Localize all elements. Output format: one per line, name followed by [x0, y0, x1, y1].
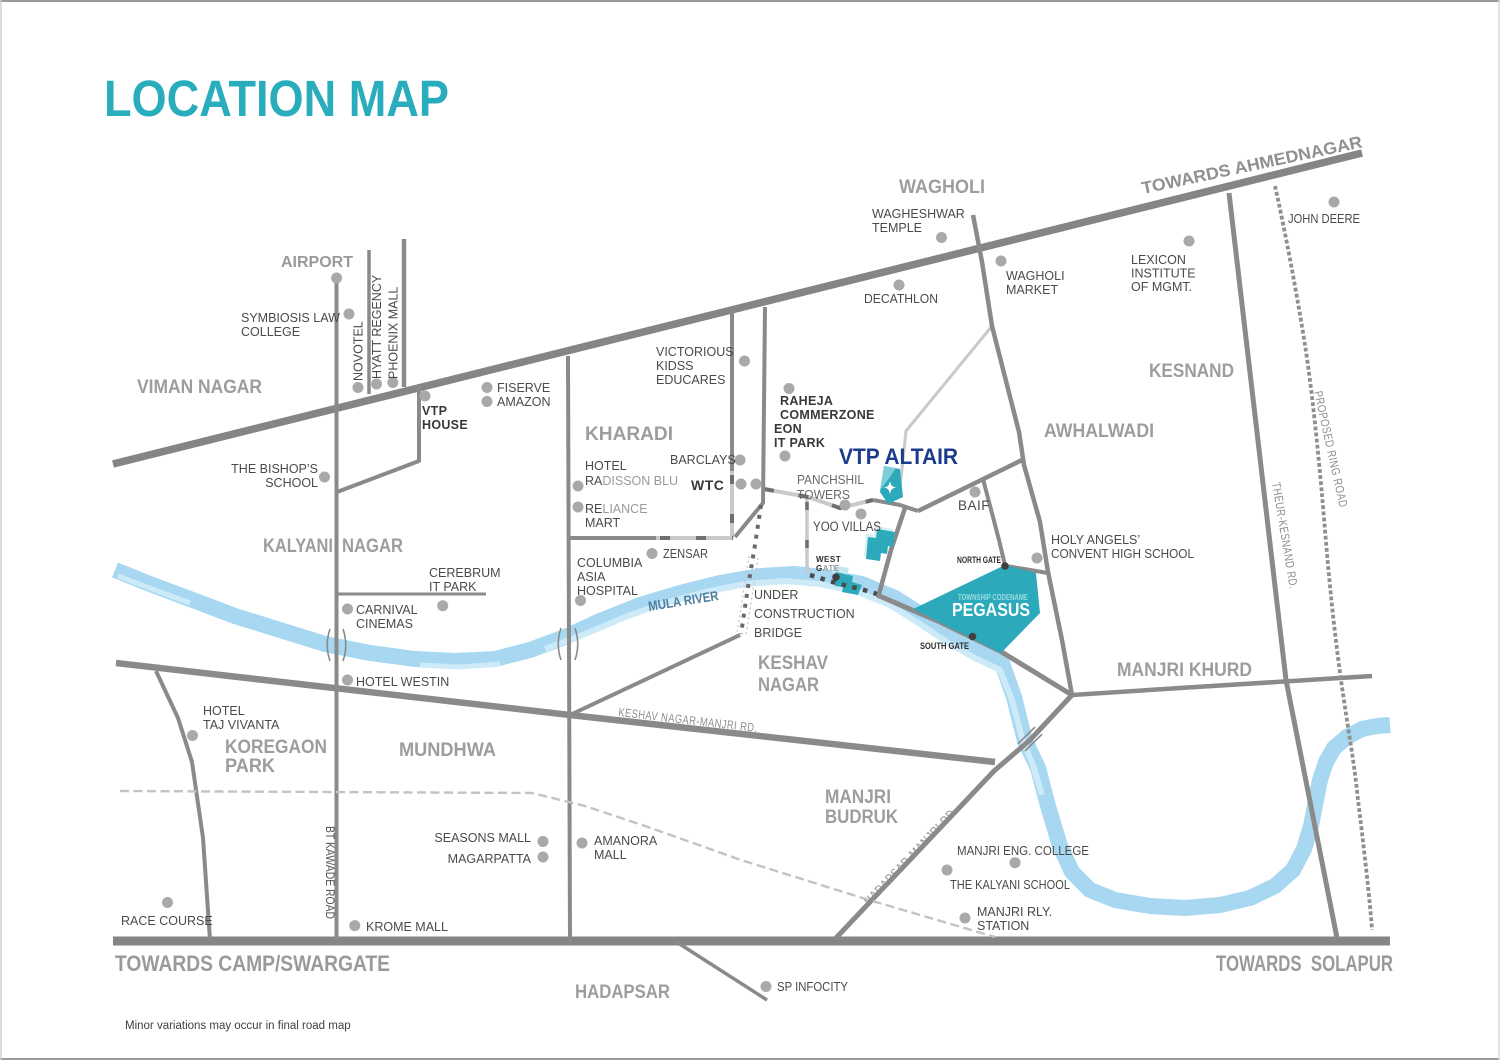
svg-text:HOSPITAL: HOSPITAL: [577, 584, 638, 598]
svg-text:LOCATION MAP: LOCATION MAP: [104, 70, 449, 127]
svg-text:RADISSON BLU: RADISSON BLU: [585, 474, 678, 488]
svg-text:VTP ALTAIR: VTP ALTAIR: [839, 444, 958, 469]
svg-text:CINEMAS: CINEMAS: [356, 617, 413, 631]
svg-text:KESHAV: KESHAV: [758, 653, 828, 674]
svg-text:THE KALYANI SCHOOL: THE KALYANI SCHOOL: [950, 878, 1070, 892]
svg-text:MART: MART: [585, 516, 621, 530]
svg-text:TEMPLE: TEMPLE: [872, 221, 922, 235]
svg-text:TAJ VIVANTA: TAJ VIVANTA: [203, 718, 280, 732]
svg-text:NOVOTEL: NOVOTEL: [352, 321, 366, 381]
svg-text:BRIDGE: BRIDGE: [754, 626, 802, 640]
svg-text:EDUCARES: EDUCARES: [656, 373, 725, 387]
svg-text:UNDER: UNDER: [754, 588, 798, 602]
svg-text:ASIA: ASIA: [577, 570, 606, 584]
svg-text:COMMERZONE: COMMERZONE: [780, 408, 875, 422]
svg-text:BAIF: BAIF: [958, 498, 990, 513]
svg-text:RELIANCE: RELIANCE: [585, 502, 648, 516]
svg-text:CARNIVAL: CARNIVAL: [356, 603, 418, 617]
svg-text:OF MGMT.: OF MGMT.: [1131, 280, 1192, 294]
svg-text:MALL: MALL: [594, 848, 627, 862]
svg-text:INSTITUTE: INSTITUTE: [1131, 267, 1196, 281]
svg-text:PARK: PARK: [225, 756, 275, 777]
svg-text:KESNAND: KESNAND: [1149, 361, 1234, 382]
svg-text:EON: EON: [774, 422, 802, 436]
svg-text:AMANORA: AMANORA: [594, 834, 658, 848]
svg-text:HOUSE: HOUSE: [422, 418, 468, 432]
svg-text:HOLY ANGELS’: HOLY ANGELS’: [1051, 533, 1140, 547]
svg-text:SEASONS MALL: SEASONS MALL: [434, 831, 531, 845]
svg-text:HOTEL WESTIN: HOTEL WESTIN: [356, 675, 449, 689]
svg-text:HOTEL: HOTEL: [203, 704, 245, 718]
svg-text:PHOENIX MALL: PHOENIX MALL: [387, 287, 401, 379]
svg-text:KIDSS: KIDSS: [656, 359, 694, 373]
svg-text:JOHN DEERE: JOHN DEERE: [1288, 212, 1360, 226]
svg-text:AWHALWADI: AWHALWADI: [1044, 421, 1154, 442]
svg-text:RAHEJA: RAHEJA: [780, 394, 833, 408]
svg-text:MANJRI: MANJRI: [825, 787, 891, 808]
svg-text:HYATT REGENCY: HYATT REGENCY: [370, 274, 384, 379]
svg-text:GATE: GATE: [816, 564, 840, 573]
svg-text:BT KAWADE ROAD: BT KAWADE ROAD: [323, 826, 335, 919]
svg-text:NORTH GATE: NORTH GATE: [957, 555, 1001, 565]
svg-text:DECATHLON: DECATHLON: [864, 292, 938, 306]
svg-text:TOWERS: TOWERS: [797, 487, 850, 502]
svg-text:WTC: WTC: [691, 477, 724, 493]
svg-text:RACE COURSE: RACE COURSE: [121, 914, 213, 928]
svg-text:BARCLAYS: BARCLAYS: [670, 453, 736, 467]
svg-text:STATION: STATION: [977, 919, 1029, 933]
svg-text:LEXICON: LEXICON: [1131, 253, 1186, 267]
svg-text:SP INFOCITY: SP INFOCITY: [777, 980, 849, 994]
svg-text:SYMBIOSIS LAW: SYMBIOSIS LAW: [241, 311, 340, 325]
svg-text:CONVENT HIGH SCHOOL: CONVENT HIGH SCHOOL: [1051, 547, 1194, 561]
svg-text:MANJRI RLY.: MANJRI RLY.: [977, 905, 1052, 919]
svg-text:COLUMBIA: COLUMBIA: [577, 556, 643, 570]
svg-text:HADAPSAR: HADAPSAR: [575, 982, 670, 1003]
svg-text:NAGAR: NAGAR: [342, 536, 403, 557]
svg-text:IT PARK: IT PARK: [774, 436, 825, 450]
svg-text:VTP: VTP: [422, 404, 447, 418]
svg-text:NAGAR: NAGAR: [758, 675, 819, 696]
svg-text:MUNDHWA: MUNDHWA: [399, 740, 496, 761]
svg-text:FISERVE: FISERVE: [497, 381, 550, 395]
svg-text:CONSTRUCTION: CONSTRUCTION: [754, 607, 855, 621]
svg-text:ZENSAR: ZENSAR: [663, 547, 708, 561]
svg-text:KALYANI: KALYANI: [263, 536, 333, 557]
svg-text:COLLEGE: COLLEGE: [241, 325, 300, 339]
svg-text:WAGHESHWAR: WAGHESHWAR: [872, 207, 965, 221]
svg-text:YOO VILLAS: YOO VILLAS: [813, 519, 881, 534]
svg-text:AMAZON: AMAZON: [497, 395, 550, 409]
svg-text:SCHOOL: SCHOOL: [265, 476, 318, 490]
svg-text:KROME MALL: KROME MALL: [366, 920, 448, 934]
svg-text:WEST: WEST: [816, 555, 841, 564]
svg-text:BUDRUK: BUDRUK: [825, 807, 898, 828]
svg-text:TOWARDS SOLAPUR: TOWARDS SOLAPUR: [1216, 951, 1393, 976]
svg-text:WAGHOLI: WAGHOLI: [899, 177, 985, 198]
svg-text:TOWARDS CAMP/SWARGATE: TOWARDS CAMP/SWARGATE: [115, 951, 390, 976]
svg-text:WAGHOLI: WAGHOLI: [1006, 269, 1065, 283]
svg-text:KOREGAON: KOREGAON: [225, 737, 327, 758]
svg-text:Minor variations may occur in: Minor variations may occur in final road…: [125, 1020, 351, 1032]
svg-text:IT PARK: IT PARK: [429, 580, 477, 594]
svg-text:MARKET: MARKET: [1006, 283, 1058, 297]
svg-text:VIMAN NAGAR: VIMAN NAGAR: [137, 377, 262, 398]
svg-text:MAGARPATTA: MAGARPATTA: [448, 852, 532, 866]
svg-text:KHARADI: KHARADI: [585, 424, 673, 445]
svg-text:AIRPORT: AIRPORT: [281, 254, 354, 271]
svg-text:MANJRI KHURD: MANJRI KHURD: [1117, 660, 1252, 681]
svg-text:PANCHSHIL: PANCHSHIL: [797, 472, 864, 487]
svg-text:SOUTH GATE: SOUTH GATE: [920, 641, 969, 651]
svg-text:PEGASUS: PEGASUS: [952, 600, 1030, 620]
svg-text:HOTEL: HOTEL: [585, 459, 627, 473]
svg-text:VICTORIOUS: VICTORIOUS: [656, 345, 734, 359]
svg-text:THE BISHOP’S: THE BISHOP’S: [231, 462, 318, 476]
svg-text:CEREBRUM: CEREBRUM: [429, 566, 501, 580]
svg-text:MANJRI ENG. COLLEGE: MANJRI ENG. COLLEGE: [957, 844, 1089, 858]
